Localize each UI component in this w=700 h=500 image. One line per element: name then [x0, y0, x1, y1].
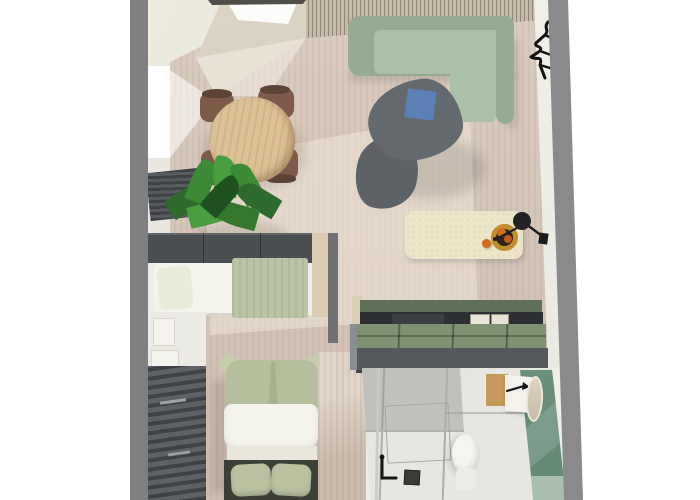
worktop-seam [356, 335, 546, 337]
nook-divider [328, 233, 338, 343]
bed-pillow [270, 463, 312, 497]
chair-backrest [260, 85, 290, 94]
island-end-cap [350, 324, 357, 370]
wall-lamp [492, 210, 554, 248]
bed-pillow [230, 463, 272, 497]
bed-blanket [224, 404, 318, 452]
wall-frame [153, 318, 175, 346]
kitchen-counter-top [360, 300, 542, 312]
radiator-lower [146, 366, 206, 500]
island-worktop [356, 324, 546, 348]
daybed-pillow [156, 266, 194, 311]
daybed-throw-blanket [232, 258, 308, 318]
sideboard-side-panel [312, 233, 328, 317]
floor-plan-render [0, 0, 700, 500]
chair-backrest [202, 89, 232, 98]
blue-book [404, 88, 436, 120]
orange [482, 239, 491, 248]
sofa-chaise-armrest [496, 16, 514, 124]
exterior-wall-left [130, 0, 148, 500]
toilet-seat [456, 468, 476, 490]
window [148, 66, 170, 158]
throw-drape-texture [232, 258, 308, 318]
potted-plant [166, 166, 270, 240]
wardrobe [318, 352, 368, 500]
wardrobe-grain [318, 352, 368, 500]
shower-drain [404, 470, 421, 486]
